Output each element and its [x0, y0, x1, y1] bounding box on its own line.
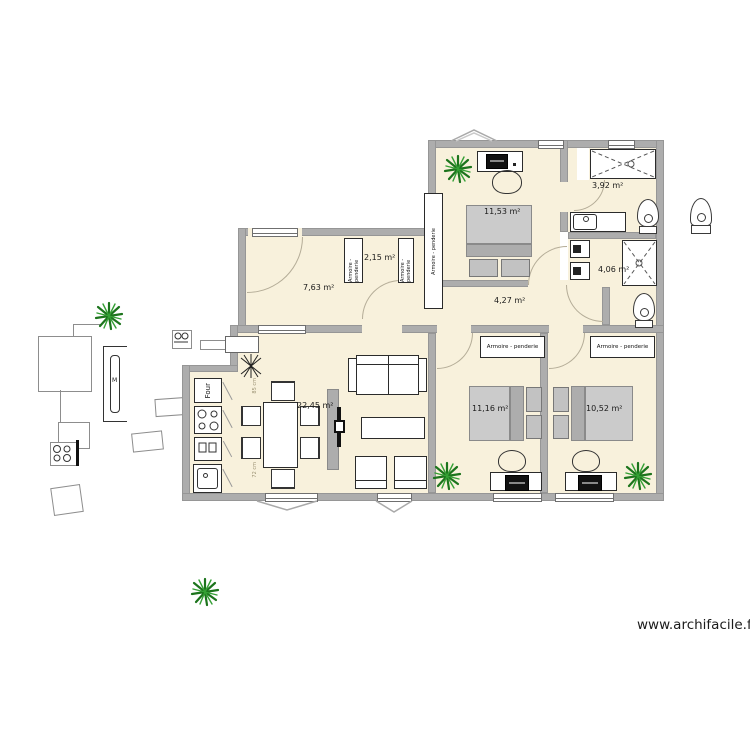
toilet-bathroom[interactable]	[633, 293, 655, 329]
window-living-passage[interactable]	[258, 325, 306, 334]
window-top-2[interactable]	[608, 140, 635, 149]
dining-chair-left-1[interactable]	[241, 406, 261, 426]
opening-bedroom-right-door	[549, 325, 583, 333]
room-label-shower-room: 3,92 m²	[592, 181, 623, 190]
room-label-bathroom: 4,06 m²	[598, 265, 629, 274]
basin-1-glyph	[573, 245, 581, 253]
dining-chair-bottom[interactable]	[271, 469, 295, 489]
outdoor-table[interactable]	[38, 336, 92, 392]
wall-kitchen-top[interactable]	[182, 365, 238, 372]
faucet-icon	[583, 216, 589, 222]
radiator[interactable]: M	[103, 346, 127, 422]
room-label-hallway: 4,27 m²	[494, 296, 525, 305]
radiator-label: M	[112, 377, 117, 384]
toilet-outside[interactable]	[690, 198, 712, 234]
opening-bedroom-left-door	[437, 325, 471, 333]
media-box[interactable]	[334, 420, 345, 433]
chair-bedroom-right[interactable]	[572, 450, 600, 472]
bay-chevron-top	[450, 128, 498, 142]
shower-2[interactable]	[622, 240, 657, 286]
armchair-1[interactable]	[355, 456, 387, 489]
bed-top-pillow-1	[469, 259, 498, 277]
window-bedroom-right[interactable]	[555, 493, 614, 502]
bed-right-mattress[interactable]	[585, 386, 633, 441]
window-bedroom-left[interactable]	[493, 493, 542, 502]
bed-top-fold	[466, 244, 532, 257]
outdoor-cooktop[interactable]	[50, 442, 78, 466]
room-label-closet: 2,15 m²	[364, 253, 395, 262]
connector-line-v1	[73, 324, 74, 336]
sideboard[interactable]	[225, 336, 259, 353]
room-label-bedroom-top: 11,53 m²	[484, 207, 520, 216]
opening-living-door	[362, 325, 402, 333]
plant-bedroom-left[interactable]	[433, 462, 463, 492]
chair-bedroom-top[interactable]	[492, 170, 522, 194]
bed-left-fold	[510, 386, 524, 441]
bed-right-pillow-1	[553, 387, 569, 412]
sofa-arm-right	[418, 358, 427, 392]
chair-bedroom-left[interactable]	[498, 450, 526, 472]
toilet-shower-room[interactable]	[637, 199, 659, 235]
connector-line-v2	[60, 390, 61, 422]
washing-machine-icon[interactable]	[172, 330, 192, 349]
outdoor-cooktop-bar	[76, 440, 79, 466]
shower-partition	[577, 148, 589, 180]
dining-chair-right-2[interactable]	[300, 437, 320, 459]
bed-left-mattress[interactable]	[469, 386, 510, 441]
wardrobe-bedroom-top[interactable]: Armoire - penderie	[424, 193, 443, 309]
room-label-living: 22,45 m²	[297, 401, 333, 410]
kitchen-sink[interactable]	[193, 464, 222, 493]
sofa-body[interactable]	[356, 355, 419, 395]
computer-icon	[578, 475, 602, 491]
bed-left-pillow-2	[526, 415, 542, 439]
computer-icon	[486, 154, 508, 169]
room-label-entry: 7,63 m²	[303, 283, 334, 292]
cooktop[interactable]	[194, 406, 222, 434]
mouse-icon	[513, 163, 516, 166]
room-label-bedroom-left: 11,16 m²	[472, 404, 508, 413]
wall-kitchen-left[interactable]	[182, 365, 190, 501]
armchair-2[interactable]	[394, 456, 427, 489]
folding-chair-2[interactable]	[131, 430, 164, 452]
ceiling-light-icon[interactable]	[237, 352, 265, 380]
dimension-bottom: 72 cm	[252, 462, 258, 478]
wardrobe-closet-right[interactable]: Armoire - penderie	[398, 238, 414, 283]
dining-table[interactable]	[263, 402, 298, 468]
dining-chair-left-2[interactable]	[241, 437, 261, 459]
dining-chair-top[interactable]	[271, 381, 295, 401]
bay-chevron-bottom-2	[375, 500, 413, 515]
computer-icon	[505, 475, 529, 491]
folding-chair-3[interactable]	[50, 484, 84, 516]
basin-2-glyph	[573, 267, 581, 275]
wardrobe-bedroom-left[interactable]: Armoire - penderie	[480, 336, 545, 358]
coffee-table[interactable]	[361, 417, 425, 439]
bed-top-pillow-2	[501, 259, 530, 277]
plant-outside-left[interactable]	[95, 302, 125, 332]
opening-showerroom-door	[560, 182, 568, 212]
wall-hall-wc[interactable]	[602, 287, 610, 325]
watermark: www.archifacile.fr	[637, 617, 750, 633]
shower-1[interactable]	[590, 149, 656, 179]
wardrobe-bedroom-right[interactable]: Armoire - penderie	[590, 336, 655, 358]
dimension-top: 85 cm	[252, 378, 258, 394]
bed-right-pillow-2	[553, 415, 569, 439]
wall-right[interactable]	[656, 140, 664, 501]
window-entry[interactable]	[252, 228, 298, 237]
floorplan-canvas: 11,53 m² 3,92 m² 2,15 m² 7,63 m² 4,06 m²…	[0, 0, 750, 750]
room-label-bedroom-right: 10,52 m²	[586, 404, 622, 413]
bed-right-fold	[571, 386, 585, 441]
plant-bedroom-top[interactable]	[444, 155, 474, 185]
plant-bedroom-right[interactable]	[624, 462, 654, 492]
dishwasher[interactable]	[194, 437, 222, 461]
wall-entry-left[interactable]	[238, 228, 246, 332]
bed-left-pillow-1	[526, 387, 542, 412]
plant-outside-bottom[interactable]	[191, 578, 221, 608]
window-top-1[interactable]	[538, 140, 564, 149]
wardrobe-closet-left[interactable]: Armoire - penderie	[344, 238, 363, 283]
bay-chevron-bottom-1	[256, 500, 318, 513]
oven[interactable]: Four	[194, 378, 222, 403]
